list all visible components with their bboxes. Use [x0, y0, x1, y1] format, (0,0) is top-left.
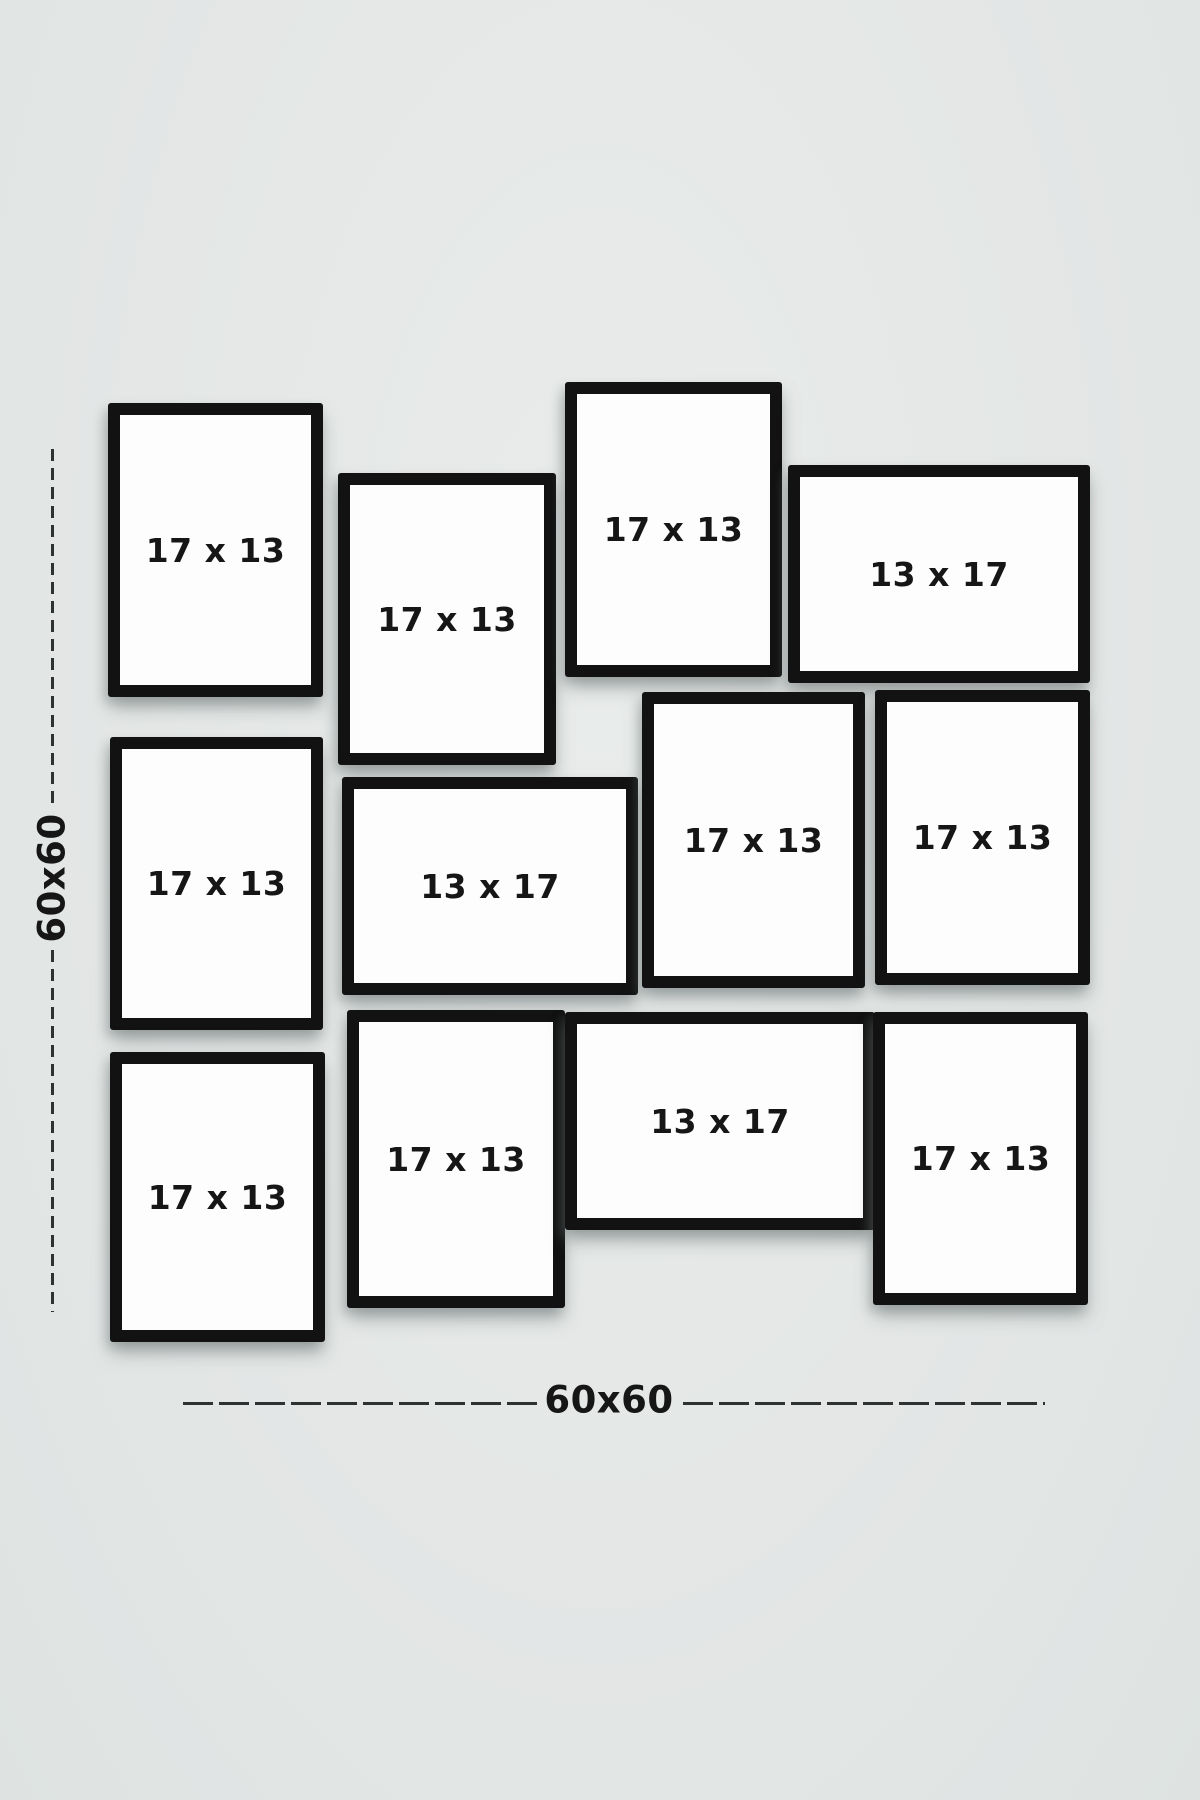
frame-11: 13 x 17 — [565, 1012, 875, 1230]
frame-size-label: 17 x 13 — [604, 510, 744, 549]
frame-size-label: 13 x 17 — [420, 867, 560, 906]
frame-8: 17 x 13 — [875, 690, 1090, 985]
frame-size-label: 17 x 13 — [911, 1139, 1051, 1178]
frame-4: 13 x 17 — [788, 465, 1090, 683]
horizontal-dashed-line-left — [183, 1402, 543, 1405]
frame-size-label: 17 x 13 — [377, 600, 517, 639]
frame-6: 13 x 17 — [342, 777, 638, 995]
frame-7: 17 x 13 — [642, 692, 865, 988]
frame-9: 17 x 13 — [110, 1052, 325, 1342]
frame-size-label: 17 x 13 — [148, 1178, 288, 1217]
frame-1: 17 x 13 — [108, 403, 323, 697]
frame-size-label: 17 x 13 — [146, 531, 286, 570]
frame-size-label: 17 x 13 — [147, 864, 287, 903]
frame-2: 17 x 13 — [338, 473, 556, 765]
frame-10: 17 x 13 — [347, 1010, 565, 1308]
frame-size-label: 13 x 17 — [869, 555, 1009, 594]
vertical-dashed-line-upper — [51, 449, 54, 808]
horizontal-dashed-line-right — [683, 1402, 1045, 1405]
horizontal-dimension-label: 60x60 — [544, 1379, 673, 1422]
vertical-dashed-line-lower — [51, 950, 54, 1312]
frame-3: 17 x 13 — [565, 382, 782, 677]
frame-12: 17 x 13 — [873, 1012, 1088, 1305]
frame-size-label: 17 x 13 — [913, 818, 1053, 857]
frame-size-label: 13 x 17 — [650, 1102, 790, 1141]
gallery-wall-layout-diagram: 60x60 60x60 17 x 1317 x 1317 x 1313 x 17… — [0, 0, 1200, 1800]
frame-5: 17 x 13 — [110, 737, 323, 1030]
frame-size-label: 17 x 13 — [386, 1140, 526, 1179]
frame-size-label: 17 x 13 — [684, 821, 824, 860]
vertical-dimension-label: 60x60 — [31, 813, 74, 942]
